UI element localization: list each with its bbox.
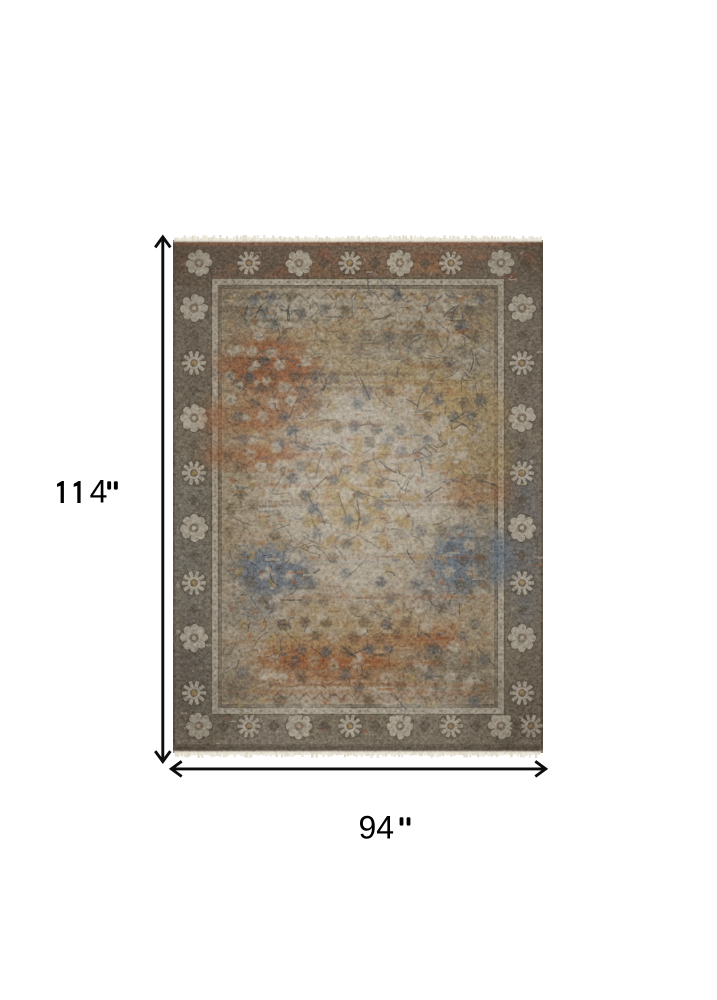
svg-text:94: 94 [359, 810, 395, 846]
svg-text:4: 4 [90, 474, 108, 510]
